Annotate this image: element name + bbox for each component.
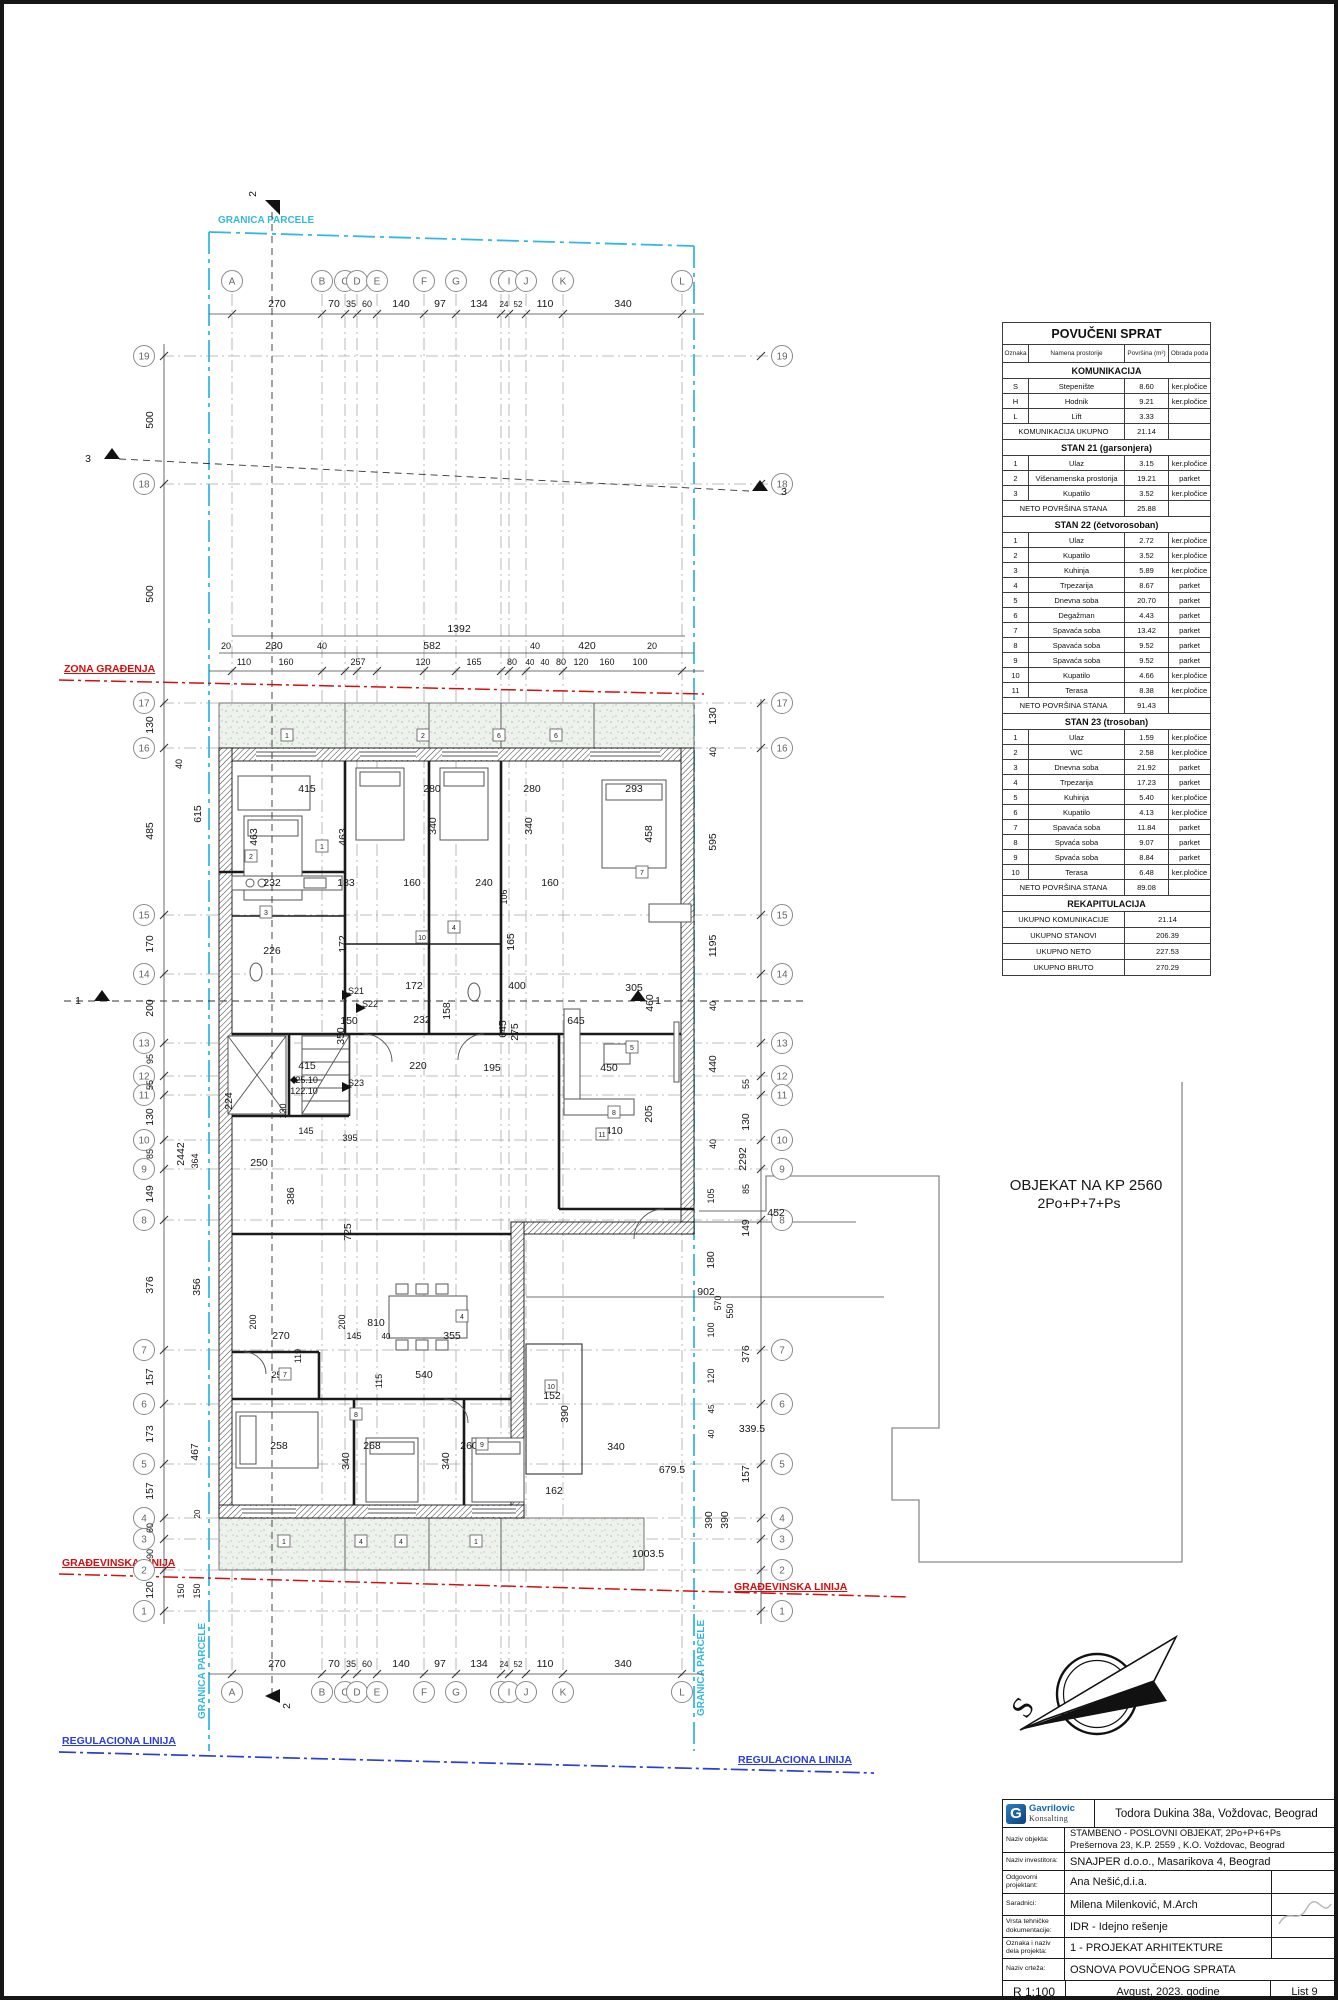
grid-col-label: B bbox=[319, 1688, 326, 1699]
dim-label: 134 bbox=[470, 298, 488, 310]
dim-label: 224 bbox=[223, 1092, 235, 1110]
table-cell: 4.43 bbox=[1125, 608, 1169, 623]
table-cell: 8.84 bbox=[1125, 850, 1169, 865]
table-cell: NETO POVRŠINA STANA bbox=[1003, 880, 1125, 896]
object-name-line1: STAMBENO - POSLOVNI OBJEKAT, 2Po+P+6+Ps bbox=[1070, 1828, 1333, 1840]
grid-col-label: I bbox=[508, 277, 511, 288]
grid-row-label: 14 bbox=[138, 970, 150, 981]
table-cell: 7 bbox=[1003, 820, 1029, 835]
dim-label: 60 bbox=[145, 1523, 155, 1533]
dim-label: 20 bbox=[193, 1509, 202, 1518]
table-cell: Spavaća soba bbox=[1029, 820, 1125, 835]
table-cell: 1 bbox=[1003, 730, 1029, 745]
dim-label: 149 bbox=[144, 1185, 156, 1203]
area-table: POVUČENI SPRATOznakaNamena prostorijePov… bbox=[1002, 322, 1211, 976]
object-name-line2: Prešernova 23, K.P. 2559 , K.O. Voždovac… bbox=[1070, 1840, 1333, 1852]
dim-label: 1195 bbox=[707, 935, 719, 958]
table-cell: Dnevna soba bbox=[1029, 760, 1125, 775]
company-address: Todora Dukina 38a, Voždovac, Beograd bbox=[1095, 1800, 1338, 1827]
dim-label: 150 bbox=[176, 1583, 186, 1598]
dim-label: 20 bbox=[647, 641, 657, 651]
table-cell: 1 bbox=[1003, 533, 1029, 548]
table-cell: ker.pločice bbox=[1169, 730, 1211, 745]
table-cell: 6 bbox=[1003, 805, 1029, 820]
table-cell: parket bbox=[1169, 593, 1211, 608]
signature-icon bbox=[1275, 1894, 1335, 1934]
grid-row-label: 16 bbox=[138, 744, 150, 755]
dim-label: 200 bbox=[248, 1314, 258, 1329]
table-cell: Spvaća soba bbox=[1029, 835, 1125, 850]
dim-label: 260 bbox=[460, 1440, 478, 1452]
dim-label: 280 bbox=[523, 783, 541, 795]
grid-row-label: 10 bbox=[776, 1136, 788, 1147]
table-cell: 9.52 bbox=[1125, 653, 1169, 668]
grid-col-label: K bbox=[560, 1688, 567, 1699]
company-subname: Konsalting bbox=[1029, 1814, 1075, 1823]
table-cell: 3 bbox=[1003, 760, 1029, 775]
grid-row-label: 15 bbox=[776, 911, 788, 922]
dim-label: 376 bbox=[740, 1345, 752, 1363]
grid-col-label: K bbox=[560, 277, 567, 288]
dim-label: 240 bbox=[475, 877, 493, 889]
table-cell: 270.29 bbox=[1125, 960, 1211, 976]
table-cell: 2.72 bbox=[1125, 533, 1169, 548]
table-row: NETO POVRŠINA STANA91.43 bbox=[1003, 698, 1211, 714]
dim-label: 183 bbox=[337, 877, 355, 889]
table-row: UKUPNO STANOVI206.39 bbox=[1003, 928, 1211, 944]
dim-label: 570 bbox=[713, 1295, 723, 1310]
dim-label: 452 bbox=[767, 1207, 785, 1219]
dim-label: 100 bbox=[706, 1322, 716, 1337]
table-cell: S bbox=[1003, 379, 1029, 394]
grid-row-label: 15 bbox=[138, 911, 150, 922]
dim-label: 195 bbox=[483, 1062, 501, 1074]
regulation-line-label-right: REGULACIONA LINIJA bbox=[738, 1754, 852, 1766]
dim-label: 52 bbox=[514, 300, 523, 309]
dim-label: 340 bbox=[607, 1441, 625, 1453]
room-tag-label: 8 bbox=[612, 1110, 616, 1117]
table-cell: STAN 23 (trosoban) bbox=[1003, 714, 1211, 730]
dim-label: 40 bbox=[707, 1429, 716, 1438]
table-row: 4Trpezarija17.23parket bbox=[1003, 775, 1211, 790]
signature-box bbox=[1271, 1870, 1338, 1958]
table-cell: 9.07 bbox=[1125, 835, 1169, 850]
investor-name: SNAJPER d.o.o., Masarikova 4, Beograd bbox=[1065, 1853, 1338, 1870]
room-tag-label: 8 bbox=[354, 1412, 358, 1419]
grid-row-label: 3 bbox=[141, 1535, 147, 1546]
table-row: 1Ulaz1.59ker.pločice bbox=[1003, 730, 1211, 745]
grid-row-label: 3 bbox=[779, 1535, 785, 1546]
section-marker-2-top-label: 2 bbox=[247, 191, 259, 197]
table-row: 8Spvaća soba9.07parket bbox=[1003, 835, 1211, 850]
dim-label: 257 bbox=[350, 657, 365, 667]
dim-label: 60 bbox=[362, 299, 372, 309]
dim-label: 95 bbox=[145, 1054, 155, 1064]
table-cell: NETO POVRŠINA STANA bbox=[1003, 698, 1125, 714]
dim-label: 110 bbox=[237, 657, 251, 667]
dim-label: 810 bbox=[367, 1317, 385, 1329]
table-cell: 21.14 bbox=[1125, 424, 1169, 440]
room-tag-label: 4 bbox=[460, 1314, 464, 1321]
dim-label: 440 bbox=[707, 1055, 719, 1073]
dim-label: 1392 bbox=[447, 623, 471, 635]
table-cell: Kuhinja bbox=[1029, 790, 1125, 805]
room-tag-label: 11 bbox=[598, 1132, 605, 1139]
field-label: Odgovorni projektant: bbox=[1003, 1871, 1065, 1893]
section-marker-1-right-label: 1 bbox=[655, 995, 661, 1007]
dim-label: 157 bbox=[144, 1482, 156, 1500]
table-cell: 5 bbox=[1003, 593, 1029, 608]
dim-label: 40 bbox=[526, 658, 535, 667]
table-cell: 11 bbox=[1003, 683, 1029, 698]
table-cell: Hodnik bbox=[1029, 394, 1125, 409]
dim-label: 122.10 bbox=[290, 1086, 318, 1096]
grid-row-label: 14 bbox=[776, 970, 788, 981]
building-line-label-left: GRAĐEVINSKA LINIJA bbox=[62, 1557, 176, 1569]
table-row: UKUPNO BRUTO270.29 bbox=[1003, 960, 1211, 976]
dim-label: 356 bbox=[191, 1278, 203, 1296]
dim-label: 100 bbox=[632, 657, 647, 667]
dim-label: 130 bbox=[144, 716, 156, 734]
room-tag-label: 2 bbox=[249, 854, 253, 861]
dim-label: 645 bbox=[497, 1020, 509, 1038]
dim-label: 415 bbox=[298, 783, 316, 795]
balcony bbox=[526, 1344, 582, 1474]
grid-row-label: 2 bbox=[141, 1566, 147, 1577]
dim-label: 157 bbox=[144, 1368, 156, 1386]
table-cell: Terasa bbox=[1029, 683, 1125, 698]
grid-row-label: 5 bbox=[141, 1460, 147, 1471]
table-row: 5Kuhinja5.40ker.pločice bbox=[1003, 790, 1211, 805]
grid-col-label: D bbox=[353, 277, 360, 288]
table-cell: Spavaća soba bbox=[1029, 638, 1125, 653]
grid-col-label: E bbox=[374, 1688, 381, 1699]
dim-label: 172 bbox=[337, 935, 349, 953]
grid-col-label: J bbox=[524, 277, 529, 288]
grid-row-label: 12 bbox=[776, 1072, 788, 1083]
dim-label: 268 bbox=[363, 1440, 381, 1452]
dim-label: 60 bbox=[362, 1659, 372, 1669]
table-cell: 3 bbox=[1003, 486, 1029, 501]
zone-line bbox=[59, 680, 704, 694]
dim-label: 340 bbox=[340, 1452, 352, 1470]
grid-row-label: 18 bbox=[138, 480, 150, 491]
table-cell: 10 bbox=[1003, 668, 1029, 683]
dim-label: 35 bbox=[346, 299, 356, 309]
section-marker-3-left-label: 3 bbox=[85, 453, 91, 465]
room-tag-label: 5 bbox=[630, 1045, 634, 1052]
table-cell: Dnevna soba bbox=[1029, 593, 1125, 608]
dim-label: 205 bbox=[643, 1105, 655, 1123]
company-logo: G Gavrilovic Konsalting bbox=[1003, 1800, 1095, 1827]
table-cell: POVUČENI SPRAT bbox=[1003, 323, 1211, 345]
field-label: Naziv crteža: bbox=[1003, 1959, 1065, 1980]
wall-left bbox=[219, 748, 232, 1518]
table-cell: 3.33 bbox=[1125, 409, 1169, 424]
table-cell: ker.pločice bbox=[1169, 394, 1211, 409]
table-row: 8Spavaća soba9.52parket bbox=[1003, 638, 1211, 653]
table-cell: 6 bbox=[1003, 608, 1029, 623]
table-cell: 13.42 bbox=[1125, 623, 1169, 638]
table-cell: 19.21 bbox=[1125, 471, 1169, 486]
dim-label: 40 bbox=[541, 658, 550, 667]
table-cell: ker.pločice bbox=[1169, 865, 1211, 880]
floor-plan-drawing: GRANICA PARCELE GRANICA PARCELE GRANICA … bbox=[4, 4, 1338, 2000]
table-cell: ker.pločice bbox=[1169, 563, 1211, 578]
dim-label: 305 bbox=[625, 982, 643, 994]
dim-label: 340 bbox=[523, 817, 535, 835]
table-row: 3Dnevna soba21.92parket bbox=[1003, 760, 1211, 775]
dim-label: 119 bbox=[293, 1349, 303, 1363]
dim-label: 150 bbox=[192, 1583, 202, 1598]
table-cell: ker.pločice bbox=[1169, 683, 1211, 698]
dim-label: 645 bbox=[567, 1015, 585, 1027]
dim-label: 110 bbox=[537, 298, 554, 310]
table-cell: H bbox=[1003, 394, 1029, 409]
dim-label: 80 bbox=[507, 657, 517, 667]
table-cell: parket bbox=[1169, 760, 1211, 775]
drawing-name: OSNOVA POVUČENOG SPRATA bbox=[1065, 1959, 1338, 1980]
dim-label: 105 bbox=[706, 1188, 716, 1203]
field-label: Oznaka i naziv dela projekta: bbox=[1003, 1938, 1065, 1958]
dim-label: 400 bbox=[508, 980, 526, 992]
table-row: SStepenište8.60ker.pločice bbox=[1003, 379, 1211, 394]
room-tag-label: 4 bbox=[359, 1539, 363, 1546]
dim-label: 55 bbox=[145, 1080, 155, 1090]
table-row: 10Terasa6.48ker.pločice bbox=[1003, 865, 1211, 880]
section-marker-3-right bbox=[752, 480, 768, 491]
dim-label: 40 bbox=[174, 759, 184, 769]
dim-label: 339.5 bbox=[739, 1423, 765, 1435]
wall-right-upper bbox=[681, 748, 694, 1234]
dim-label: 2442 bbox=[175, 1142, 187, 1166]
dim-label: 180 bbox=[705, 1251, 717, 1269]
dim-label: 1003.5 bbox=[632, 1548, 664, 1560]
grid-row-label: 8 bbox=[141, 1216, 147, 1227]
table-cell: Lift bbox=[1029, 409, 1125, 424]
dim-label: 40 bbox=[708, 1139, 718, 1149]
dim-label: 90 bbox=[145, 1549, 155, 1559]
documentation-type: IDR - Idejno rešenje bbox=[1065, 1916, 1271, 1937]
table-cell: parket bbox=[1169, 775, 1211, 790]
dim-label: 40 bbox=[317, 641, 327, 651]
dim-label: 355 bbox=[443, 1330, 461, 1342]
dim-label: 40 bbox=[708, 747, 718, 757]
table-cell: 2 bbox=[1003, 471, 1029, 486]
grid-col-label: G bbox=[452, 277, 460, 288]
table-cell: ker.pločice bbox=[1169, 486, 1211, 501]
room-tag-label: 1 bbox=[474, 1539, 478, 1546]
table-cell: 9.21 bbox=[1125, 394, 1169, 409]
section-marker-3-left bbox=[104, 448, 120, 459]
company-name: Gavrilovic bbox=[1029, 1804, 1075, 1814]
grid-col-label: D bbox=[353, 1688, 360, 1699]
dim-label: 232 bbox=[263, 877, 281, 889]
table-cell: ker.pločice bbox=[1169, 668, 1211, 683]
table-cell: Kupatilo bbox=[1029, 668, 1125, 683]
table-row: POVUČENI SPRAT bbox=[1003, 323, 1211, 345]
dim-label: 350 bbox=[335, 1027, 347, 1045]
room-tag-label: 7 bbox=[640, 870, 644, 877]
dim-label: 70 bbox=[328, 1658, 340, 1670]
dim-label: 500 bbox=[144, 411, 156, 429]
dim-label: 275 bbox=[509, 1023, 521, 1041]
dim-label: 158 bbox=[441, 1002, 453, 1020]
dim-label: 200 bbox=[144, 999, 156, 1017]
dim-label: 160 bbox=[599, 657, 614, 667]
grid-row-label: 1 bbox=[141, 1607, 147, 1618]
north-compass-icon: S bbox=[1005, 1637, 1176, 1734]
table-cell: 8.67 bbox=[1125, 578, 1169, 593]
table-cell: Obrada poda bbox=[1169, 345, 1211, 363]
parcel-boundary-label-top: GRANICA PARCELE bbox=[218, 215, 314, 226]
table-cell: 7 bbox=[1003, 623, 1029, 638]
designer-name: Ana Nešić,d.i.a. bbox=[1065, 1871, 1271, 1893]
table-cell: UKUPNO STANOVI bbox=[1003, 928, 1125, 944]
dim-label: 140 bbox=[392, 298, 410, 310]
grid-col-label: I bbox=[508, 1688, 511, 1699]
table-row: 6Kupatilo4.13ker.pločice bbox=[1003, 805, 1211, 820]
room-tag-label: 4 bbox=[399, 1539, 403, 1546]
table-cell: Kuhinja bbox=[1029, 563, 1125, 578]
dim-label: 395 bbox=[342, 1133, 357, 1143]
field-label: Naziv objekta: bbox=[1003, 1828, 1065, 1852]
parcel-boundary-label-right: GRANICA PARCELE bbox=[696, 1620, 707, 1716]
dim-label: 550 bbox=[725, 1303, 735, 1318]
table-cell: Spvaća soba bbox=[1029, 850, 1125, 865]
table-row: 5Dnevna soba20.70parket bbox=[1003, 593, 1211, 608]
dim-label: 20 bbox=[221, 641, 231, 651]
dim-label: 130 bbox=[707, 707, 719, 725]
field-label: Vrsta tehničke dokumentacije: bbox=[1003, 1916, 1065, 1937]
dim-label: 500 bbox=[144, 585, 156, 603]
room-tag-label: 10 bbox=[418, 935, 426, 942]
dim-label: 115 bbox=[374, 1374, 384, 1388]
dim-label: 40 bbox=[530, 641, 540, 651]
section-marker-2-top bbox=[265, 200, 280, 215]
table-cell: parket bbox=[1169, 638, 1211, 653]
table-row: 2WC2.58ker.pločice bbox=[1003, 745, 1211, 760]
dim-label: 463 bbox=[248, 828, 260, 846]
section-marker-3-right-label: 3 bbox=[781, 486, 787, 498]
table-cell: UKUPNO NETO bbox=[1003, 944, 1125, 960]
dim-label: 463 bbox=[337, 828, 349, 846]
dim-label: 200 bbox=[337, 1314, 347, 1329]
dim-label: 280 bbox=[423, 783, 441, 795]
company-logo-icon: G bbox=[1006, 1804, 1026, 1824]
dim-label: 390 bbox=[719, 1511, 731, 1529]
table-cell: KOMUNIKACIJA bbox=[1003, 363, 1211, 379]
table-cell: 206.39 bbox=[1125, 928, 1211, 944]
table-cell bbox=[1169, 409, 1211, 424]
dim-label: 170 bbox=[144, 935, 156, 953]
grid-row-label: 19 bbox=[138, 352, 150, 363]
table-cell: 3.52 bbox=[1125, 486, 1169, 501]
table-cell: 8 bbox=[1003, 638, 1029, 653]
grid-col-label: J bbox=[524, 1688, 529, 1699]
grid-row-label: 13 bbox=[138, 1039, 150, 1050]
dim-label: 258 bbox=[270, 1440, 288, 1452]
dim-label: 52 bbox=[514, 1660, 523, 1669]
dim-label: 130 bbox=[740, 1113, 752, 1131]
table-cell: parket bbox=[1169, 608, 1211, 623]
grid-row-label: 19 bbox=[776, 352, 788, 363]
building-line-label-right: GRAĐEVINSKA LINIJA bbox=[734, 1581, 848, 1593]
dim-label: 467 bbox=[189, 1443, 201, 1461]
table-cell: UKUPNO KOMUNIKACIJE bbox=[1003, 912, 1125, 928]
table-cell: Spavaća soba bbox=[1029, 653, 1125, 668]
table-cell: 6.48 bbox=[1125, 865, 1169, 880]
drawing-date: Avgust, 2023. godine bbox=[1066, 1981, 1271, 2000]
room-tag-label: 10 bbox=[547, 1384, 555, 1391]
dim-label: 172 bbox=[405, 980, 423, 992]
dim-label: 157 bbox=[740, 1465, 752, 1483]
dim-label: 2292 bbox=[737, 1147, 749, 1171]
dim-label: 70 bbox=[328, 298, 340, 310]
section-line-3 bbox=[119, 459, 749, 491]
table-cell bbox=[1169, 424, 1211, 440]
room-tag-label: 1 bbox=[282, 1539, 286, 1546]
table-cell: Degažman bbox=[1029, 608, 1125, 623]
dim-label: 458 bbox=[643, 825, 655, 843]
table-cell: Oznaka bbox=[1003, 345, 1029, 363]
grid-row-label: 17 bbox=[138, 699, 150, 710]
grid-col-label: F bbox=[421, 1688, 427, 1699]
dim-label: 390 bbox=[559, 1405, 571, 1423]
table-row: 11Terasa8.38ker.pločice bbox=[1003, 683, 1211, 698]
dim-label: 293 bbox=[625, 783, 643, 795]
table-row: 2Višenamenska prostorija19.21parket bbox=[1003, 471, 1211, 486]
table-cell: parket bbox=[1169, 653, 1211, 668]
grid-col-label: L bbox=[679, 277, 685, 288]
dim-label: 230 bbox=[265, 640, 283, 652]
room-tag-label: 6 bbox=[554, 733, 558, 740]
table-cell: 21.92 bbox=[1125, 760, 1169, 775]
room-tag-label: 1 bbox=[320, 844, 324, 851]
table-cell: parket bbox=[1169, 835, 1211, 850]
grid-col-label: A bbox=[229, 1688, 236, 1699]
table-cell: 20.70 bbox=[1125, 593, 1169, 608]
table-cell: parket bbox=[1169, 578, 1211, 593]
grid-row-label: 4 bbox=[141, 1514, 147, 1525]
dim-label: 120 bbox=[573, 657, 588, 667]
grid-row-label: 6 bbox=[779, 1400, 785, 1411]
grid-row-label: 6 bbox=[141, 1400, 147, 1411]
table-row: 1Ulaz3.15ker.pločice bbox=[1003, 456, 1211, 471]
table-row: 7Spavaća soba13.42parket bbox=[1003, 623, 1211, 638]
table-cell: ker.pločice bbox=[1169, 533, 1211, 548]
field-label: Saradnici: bbox=[1003, 1894, 1065, 1915]
dim-label: 250 bbox=[250, 1157, 268, 1169]
grid-row-label: 5 bbox=[779, 1460, 785, 1471]
table-cell: REKAPITULACIJA bbox=[1003, 896, 1211, 912]
section-marker-1-left-label: 1 bbox=[75, 995, 81, 1007]
dim-label: 450 bbox=[600, 1062, 618, 1074]
zone-label: ZONA GRAĐENJA bbox=[64, 663, 156, 675]
dim-label: 725 bbox=[342, 1223, 354, 1241]
table-cell: WC bbox=[1029, 745, 1125, 760]
table-cell: ker.pločice bbox=[1169, 456, 1211, 471]
table-cell: parket bbox=[1169, 850, 1211, 865]
dim-label: 386 bbox=[285, 1187, 297, 1205]
table-cell: parket bbox=[1169, 623, 1211, 638]
grid-row-label: 11 bbox=[139, 1091, 150, 1102]
table-row: STAN 22 (četvorosoban) bbox=[1003, 517, 1211, 533]
grid-col-label: A bbox=[229, 277, 236, 288]
table-row: UKUPNO NETO227.53 bbox=[1003, 944, 1211, 960]
table-row: 1Ulaz2.72ker.pločice bbox=[1003, 533, 1211, 548]
dim-label: 85 bbox=[145, 1149, 155, 1159]
